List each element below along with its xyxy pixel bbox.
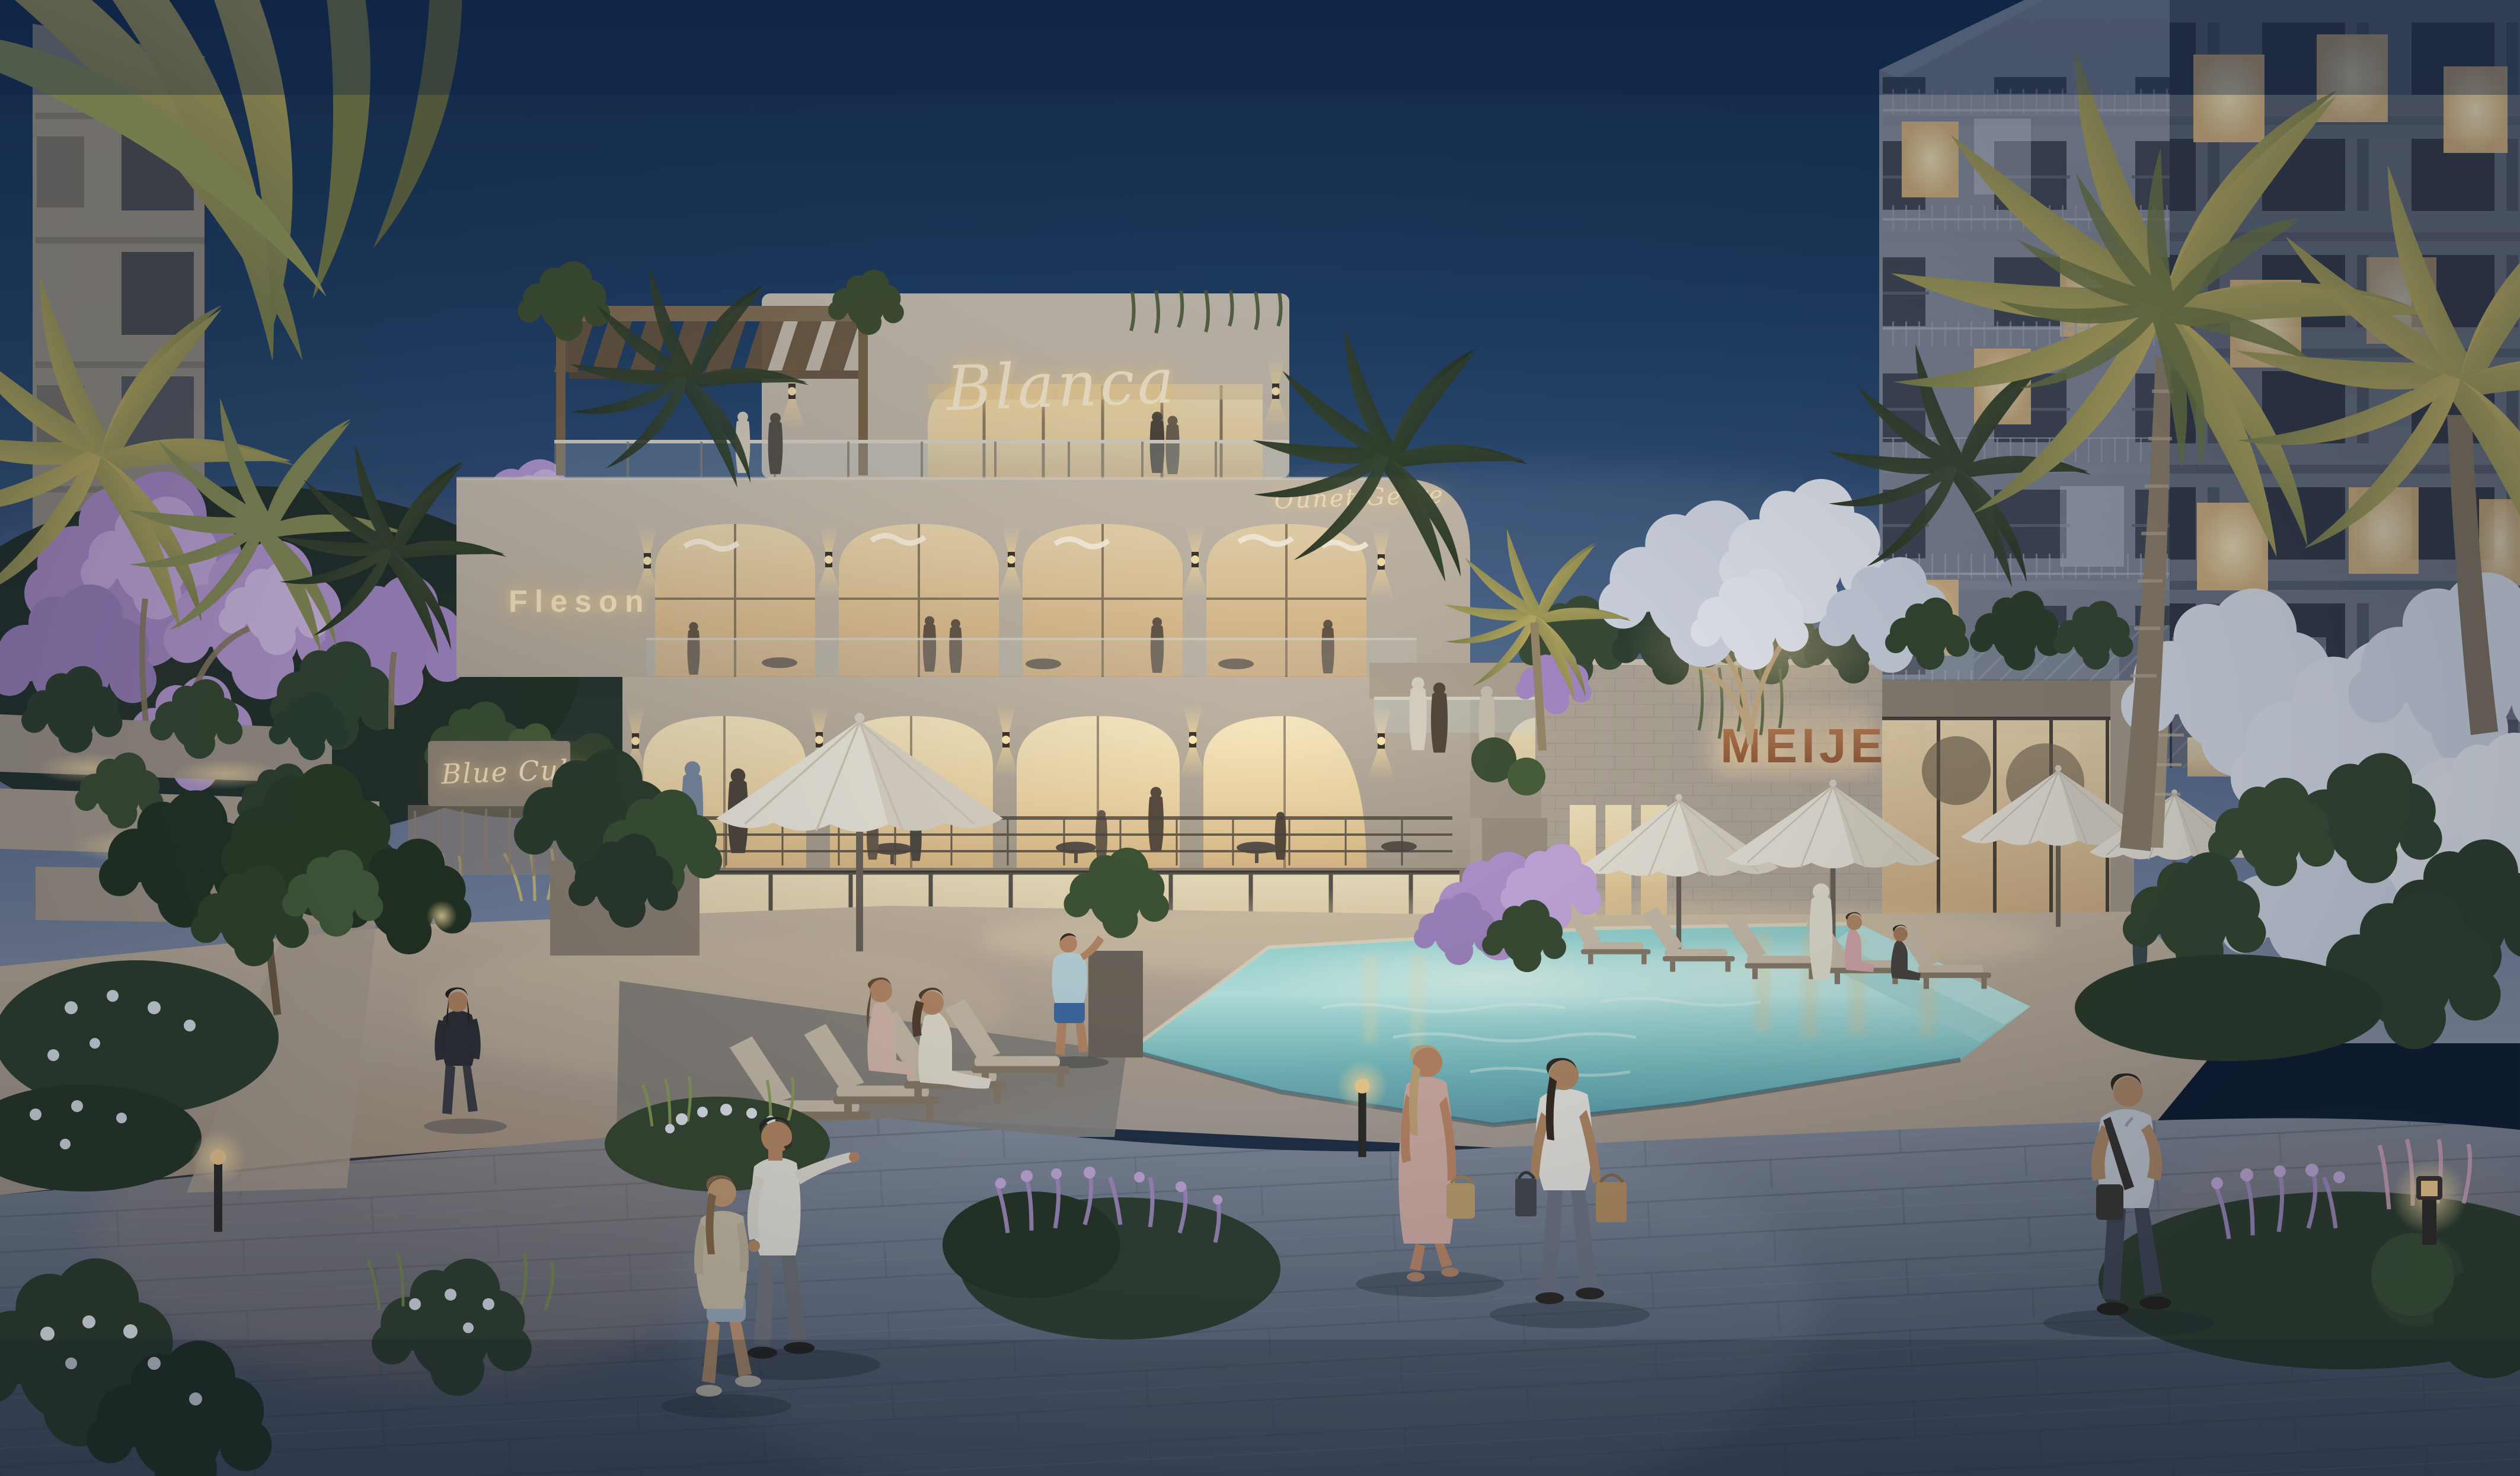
tier2-restaurant-level: Fleson Ounet Gerre	[456, 478, 1470, 677]
right-pavilion	[1882, 591, 2134, 932]
rendering-root: Blanca	[0, 0, 2520, 1476]
sign-fleson: Fleson	[509, 584, 651, 619]
planter-light	[426, 900, 457, 931]
sign-blanca: Blanca	[944, 344, 1178, 425]
